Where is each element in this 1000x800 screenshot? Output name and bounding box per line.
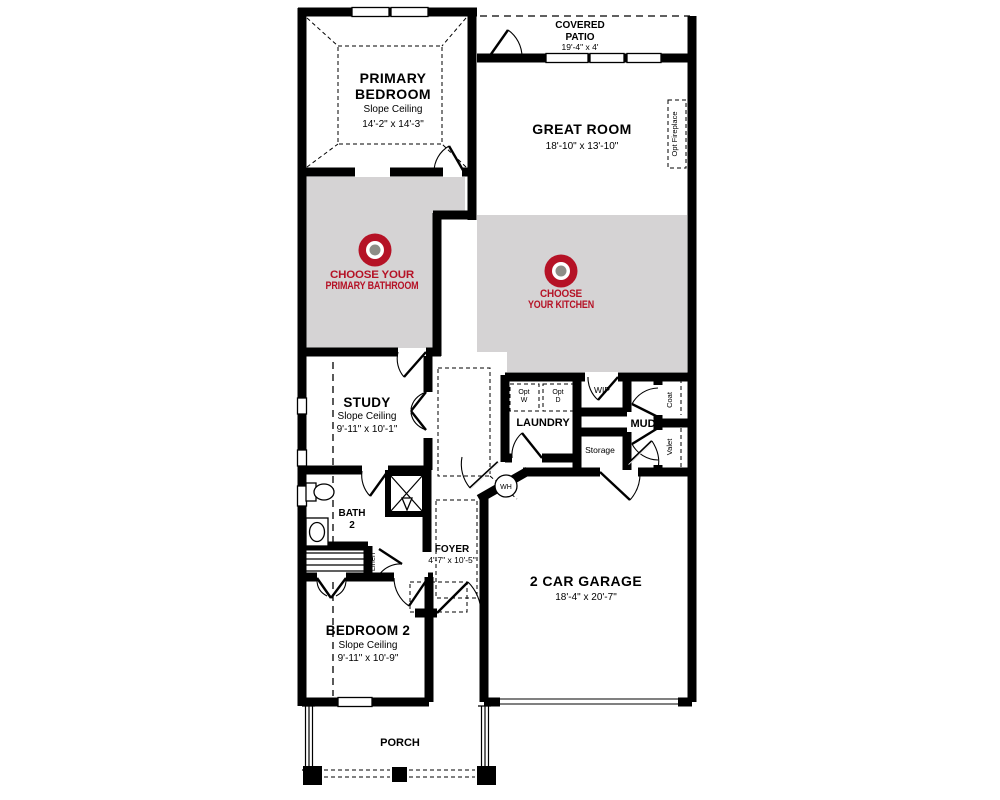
coat-door-arc [632,388,658,404]
mud-door-leaf [628,441,652,464]
wip-label: WIP [594,385,610,395]
porch-column-right [478,706,491,770]
porch-post [303,766,322,785]
linen-door-leaf [379,549,402,564]
primary-bedroom-note: Slope Ceiling [364,104,423,115]
bedroom2-label: BEDROOM 2 [326,623,410,638]
shower-drain-icon [402,498,412,510]
primary-bath-hall-door-arc [397,352,404,377]
mud-door-arc [652,441,659,468]
window [298,486,307,506]
study-note: Slope Ceiling [338,411,397,422]
laundry-door-arc [512,433,522,458]
water-heater-label: WH [500,484,512,491]
storage-label: Storage [585,445,615,455]
stair-outline [438,368,490,476]
front-door-leaf [437,582,468,613]
bedroom2-dims: 9'-11" x 10'-9" [338,653,399,664]
bath2-door-arc [362,471,370,496]
laundry-door-leaf [522,433,542,458]
patio-door-arc [508,30,522,57]
window [590,54,624,63]
foyer-label: FOYER [435,544,470,555]
entry-ceiling-outline [410,582,467,612]
garage-entry-door-arc [461,457,470,488]
window [391,8,428,17]
window [298,398,307,414]
valet-label: Valet [665,438,674,455]
mud-garage-door-leaf [600,472,630,500]
mud-label: MUD [630,418,655,430]
primary-bedroom-dims: 14'-2" x 14'-3" [362,119,424,130]
linen-label: Linen [368,553,377,571]
primary-bedroom-door-leaf [449,146,464,172]
opt-washer-label-2: W [521,397,528,404]
bath2-label-2: 2 [349,520,355,531]
patio-door-leaf [489,30,508,57]
porch-label: PORCH [380,737,420,749]
laundry-label: LAUNDRY [516,417,570,429]
foyer-dims: 4'-7" x 10'-5" [428,555,476,565]
garage-label: 2 CAR GARAGE [530,573,642,589]
study-door-leaves [411,392,426,430]
covered-patio-dims: 19'-4" x 4' [562,42,599,52]
sink-bowl-icon [310,523,325,542]
great-room-label: GREAT ROOM [532,121,631,137]
primary-bath-hall-door-leaf [404,352,426,377]
primary-bedroom-label: PRIMARY [360,70,427,86]
porch-post [392,767,407,782]
opt-dryer-label-2: D [555,397,560,404]
primary-bedroom-label-2: BEDROOM [355,86,431,102]
window [546,54,588,63]
window [298,450,307,466]
garage-door-opening [500,697,678,708]
bedroom2-note: Slope Ceiling [339,640,398,651]
garage-dims: 18'-4" x 20'-7" [555,592,617,603]
kitchen-zone[interactable] [477,215,687,372]
floor-plan-page: PRIMARY BEDROOM Slope Ceiling 14'-2" x 1… [0,0,1000,800]
window [627,54,661,63]
window [352,8,389,17]
linen-shelves-icon [304,553,366,571]
valet-door-leaf [632,428,658,444]
porch-post [477,766,496,785]
coat-label: Coat [665,391,674,408]
choose-primary-bathroom-text-2: PRIMARY BATHROOM [326,280,419,292]
garage-entry-door-leaf [470,462,498,488]
coat-door-leaf [632,404,658,417]
porch-column-left [302,706,315,770]
window [338,698,372,707]
bedroom2-door-arc [394,578,409,606]
covered-patio-label: COVERED [555,20,604,31]
choose-kitchen-text-2: YOUR KITCHEN [528,299,594,311]
study-label: STUDY [343,395,390,410]
study-door-arcs [411,392,426,430]
bedroom2-closet-door-leaves [317,578,346,598]
opt-washer-label: Opt [518,389,529,396]
study-dims: 9'-11" x 10'-1" [337,424,398,435]
bath2-label: BATH [338,508,365,519]
opt-dryer-label: Opt [552,389,563,396]
floor-plan-drawing: PRIMARY BEDROOM Slope Ceiling 14'-2" x 1… [0,0,1000,800]
toilet-bowl-icon [314,484,334,500]
great-room-dims: 18'-10" x 13'-10" [546,141,619,152]
opt-fireplace-label: Opt Fireplace [670,111,679,156]
